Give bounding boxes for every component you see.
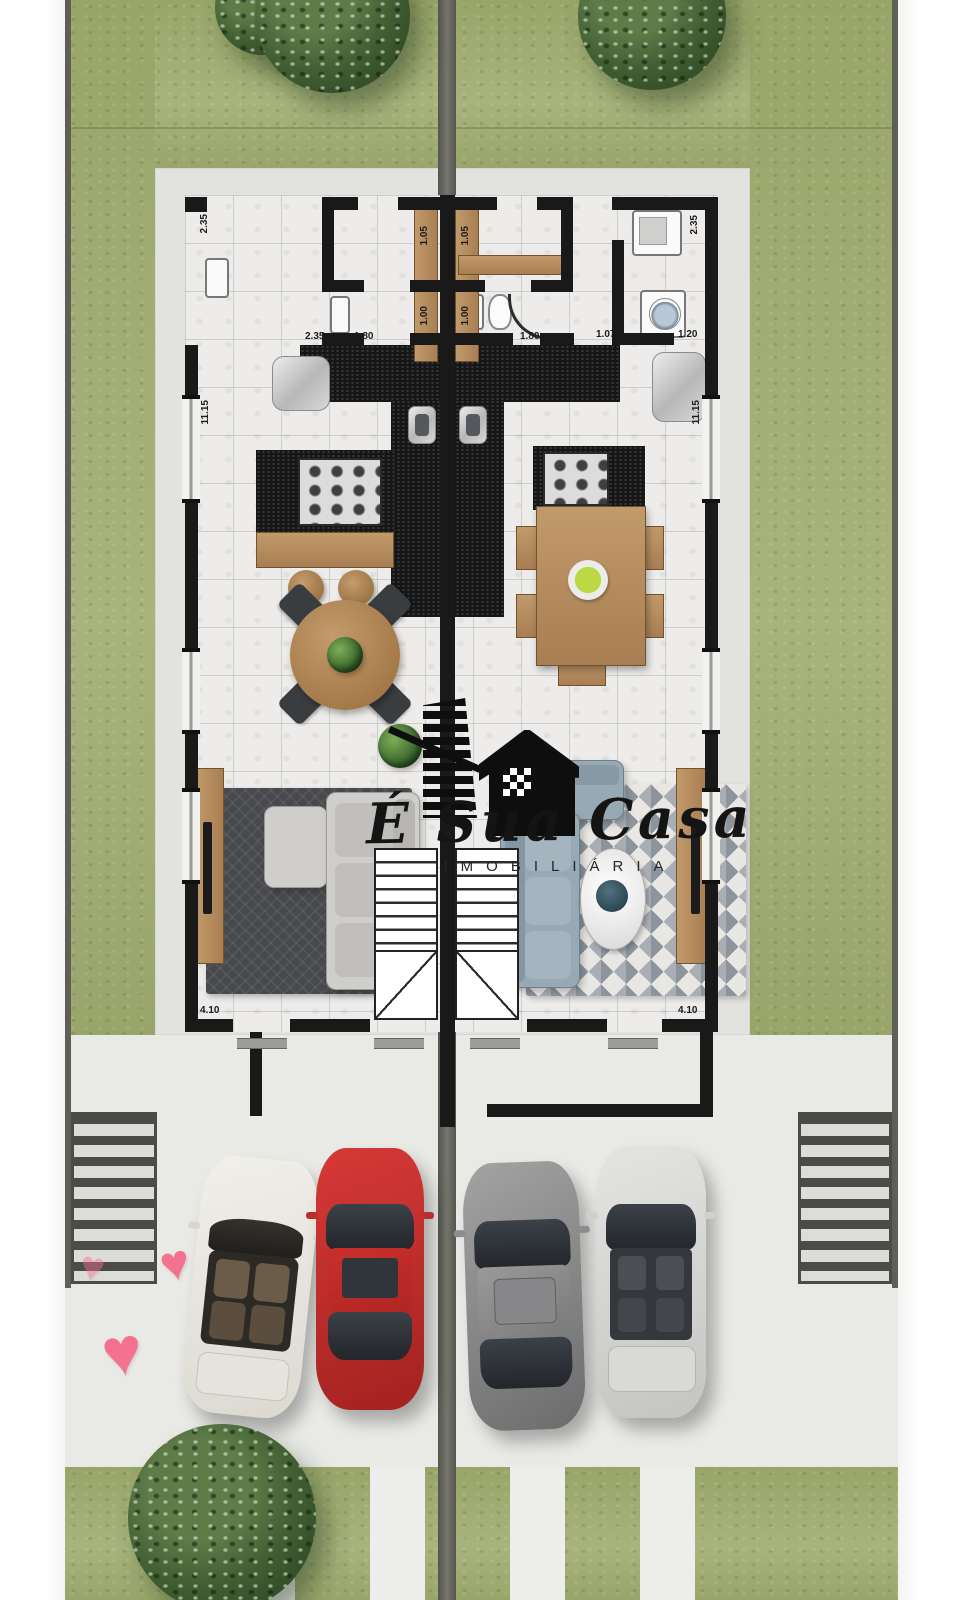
trunk-lid <box>608 1346 696 1392</box>
dimension-label: 1.05 <box>420 226 430 245</box>
roof <box>477 1264 571 1337</box>
watermark-subtitle-text: IMOBILIÁRIA <box>360 858 760 875</box>
window <box>182 395 200 503</box>
silver-car <box>596 1146 706 1418</box>
dimension-label: 4.10 <box>678 1006 697 1016</box>
wall <box>410 280 440 292</box>
windshield-glass <box>606 1204 696 1250</box>
window <box>702 395 720 503</box>
wall <box>662 1019 718 1032</box>
wall <box>540 333 574 345</box>
front-glass-strip <box>237 1038 287 1049</box>
wall <box>705 197 718 345</box>
wall <box>612 333 674 345</box>
central-wall-stub <box>440 1032 455 1127</box>
wall <box>455 197 497 210</box>
roof <box>328 1248 412 1312</box>
wall <box>322 280 364 292</box>
dimension-label: 1.80 <box>354 332 373 342</box>
page-margin-right <box>898 0 965 1600</box>
wall <box>531 280 573 292</box>
side-mirror <box>578 1226 590 1233</box>
side-mirror <box>188 1221 201 1229</box>
wall <box>322 197 358 210</box>
front-glass-strip <box>470 1038 520 1049</box>
wall <box>612 197 718 210</box>
tree <box>128 1424 316 1600</box>
watermark: É Sua Casa IMOBILIÁRIA <box>185 690 785 890</box>
floor-plan-image: 2.35 1.05 1.05 1.00 1.00 2.35 1.80 1.80 … <box>0 0 965 1600</box>
wall <box>537 197 573 210</box>
wall <box>455 333 513 345</box>
side-mirror <box>306 1212 318 1219</box>
dimension-label: 1.20 <box>678 330 697 340</box>
rear-glass <box>328 1312 412 1360</box>
front-glass-strip <box>608 1038 658 1049</box>
red-car <box>316 1148 424 1410</box>
wall <box>455 280 485 292</box>
side-mirror <box>454 1230 466 1237</box>
wall <box>185 197 207 212</box>
dimension-label: 2.35 <box>200 214 210 233</box>
wall <box>290 1019 370 1032</box>
side-mirror <box>422 1212 434 1219</box>
dimension-label: 11.15 <box>692 400 702 424</box>
wall <box>185 1019 233 1032</box>
open-cabin <box>200 1249 299 1352</box>
dimension-label: 1.07 <box>596 330 615 340</box>
open-sunroof-cabin <box>610 1248 692 1340</box>
side-mirror <box>704 1212 716 1219</box>
rear-glass <box>479 1336 573 1389</box>
dimension-label: 1.00 <box>461 306 471 325</box>
windshield-glass <box>326 1204 414 1250</box>
watermark-script-text: É Sua Casa <box>309 784 810 859</box>
dimension-label: 2.35 <box>690 215 700 234</box>
wall <box>527 1019 607 1032</box>
gray-car <box>461 1160 586 1432</box>
dimension-label: 11.15 <box>201 400 211 424</box>
central-wall <box>440 195 455 1032</box>
page-margin-left <box>0 0 65 1600</box>
trunk-lid <box>195 1351 291 1402</box>
porch-wall <box>487 1104 713 1117</box>
side-mirror <box>586 1212 598 1219</box>
dimension-label: 1.80 <box>520 332 539 342</box>
dimension-label: 1.00 <box>420 306 430 325</box>
windshield-glass <box>473 1218 571 1269</box>
wall <box>410 333 440 345</box>
dimension-label: 1.05 <box>461 226 471 245</box>
dimension-label: 2.35 <box>305 332 324 342</box>
dimension-label: 4.10 <box>200 1006 219 1016</box>
wall <box>398 197 440 210</box>
front-glass-strip <box>374 1038 424 1049</box>
